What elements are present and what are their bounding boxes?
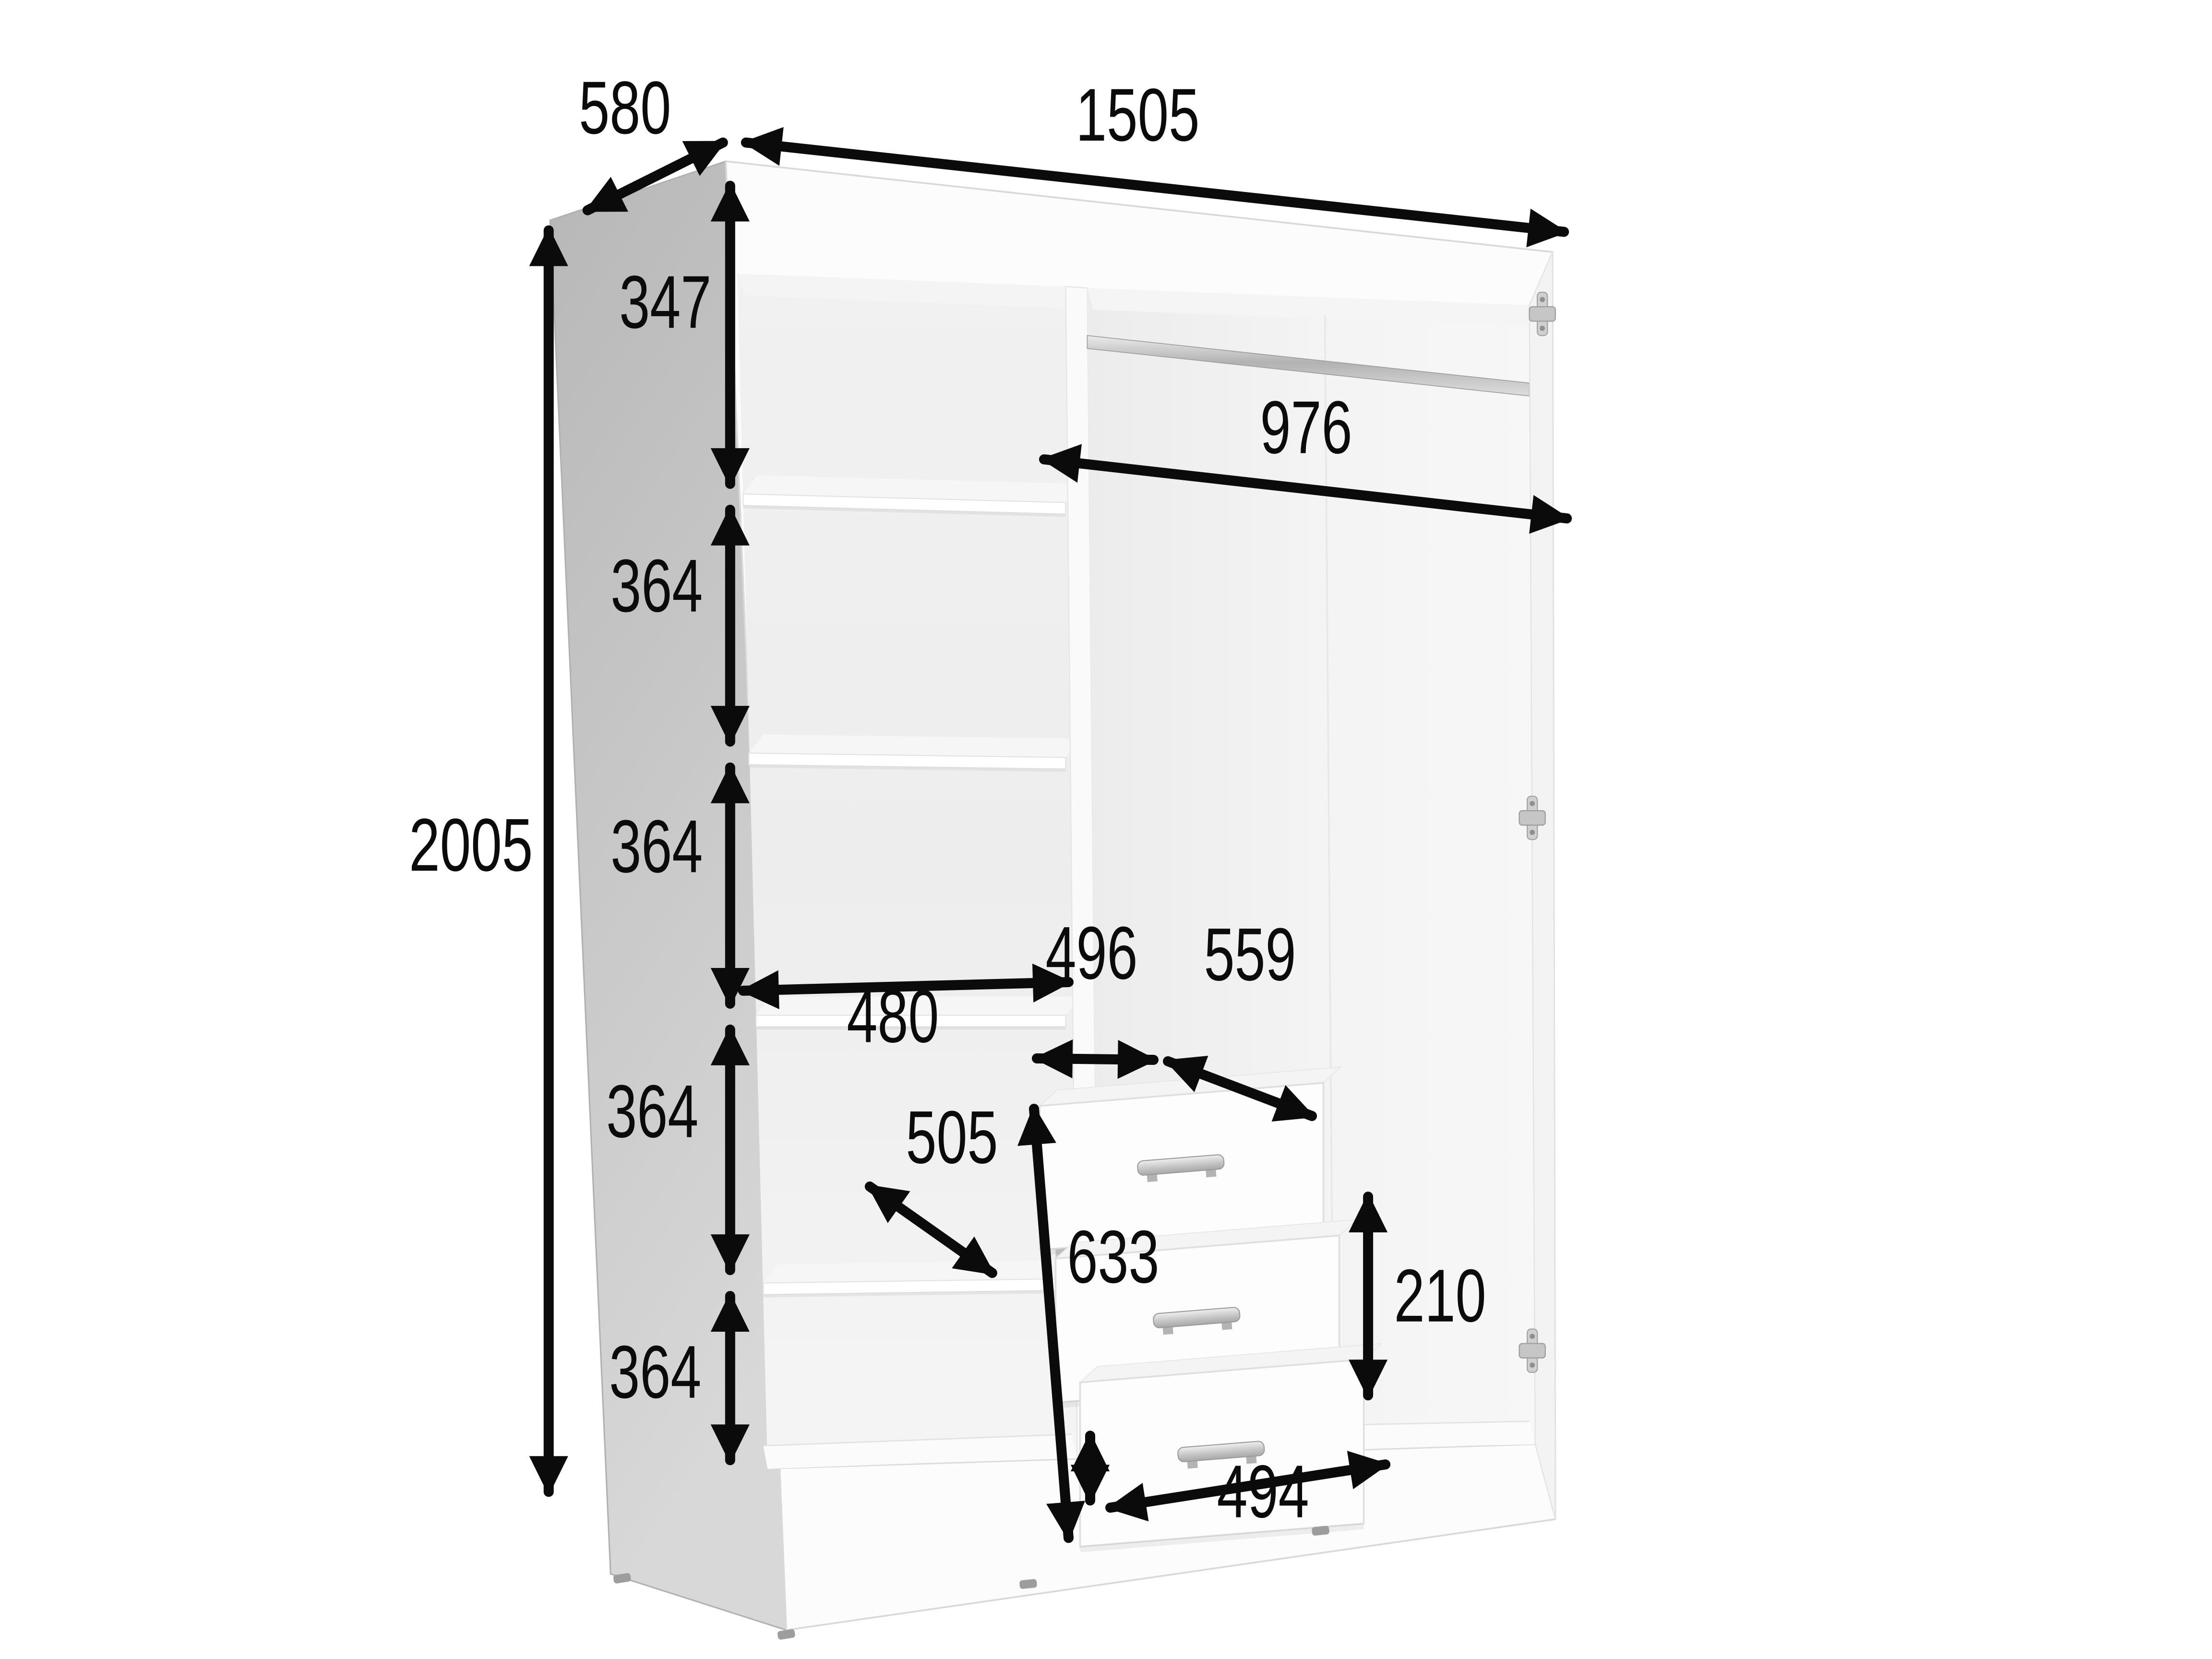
dim-shelf-gap-label: 364 bbox=[610, 544, 703, 628]
wardrobe bbox=[550, 161, 1555, 1640]
dim-hanging-section-label: 976 bbox=[1260, 386, 1352, 469]
dim-shelf-depth-label: 505 bbox=[906, 1096, 998, 1180]
dim-drawer-section-label: 496 bbox=[1045, 911, 1137, 995]
dim-drawer-height-label: 210 bbox=[1394, 1254, 1486, 1338]
dim-width-label: 1505 bbox=[1076, 73, 1199, 157]
dim-drawer-front-width-label: 494 bbox=[1217, 1450, 1309, 1534]
dim-side-clearance-label: 559 bbox=[1204, 913, 1296, 996]
dim-shelf-width-label: 480 bbox=[847, 975, 939, 1058]
dim-depth-label: 580 bbox=[579, 66, 671, 150]
dim-shelf-gap-label: 364 bbox=[610, 805, 703, 888]
dim-shelf-gap-label: 364 bbox=[606, 1070, 698, 1154]
dim-drawer-stack-height-label: 633 bbox=[1067, 1216, 1159, 1299]
wardrobe-diagram: 580 1505 2005 347 364 364 364 bbox=[0, 0, 2212, 1659]
dim-height-label: 2005 bbox=[409, 803, 533, 887]
dim-top-shelf-gap-label: 347 bbox=[619, 261, 711, 344]
shelf bbox=[763, 1260, 1080, 1296]
dim-shelf-gap-label: 364 bbox=[609, 1331, 701, 1414]
shelf bbox=[749, 734, 1080, 770]
shelf-column bbox=[737, 274, 1080, 1469]
dim-height: 2005 bbox=[409, 230, 549, 1492]
